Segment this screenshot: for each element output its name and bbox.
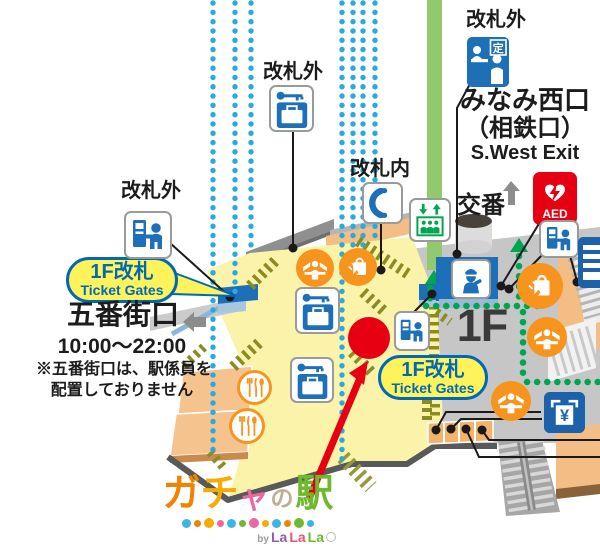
elevator-glyph [412, 201, 448, 239]
label-police-box: 交番 [448, 193, 514, 220]
service-counter-icon [296, 249, 334, 287]
kiosk-glyph [578, 237, 600, 288]
logo-char-1: ガ [162, 462, 200, 517]
logo-capsule-dots [142, 518, 354, 528]
coin-locker-glyph [294, 360, 331, 401]
fare-machine-icon: ¥ [544, 392, 585, 433]
police-officer-glyph [455, 263, 487, 295]
exit-name-jp2: （相鉄口） [450, 115, 600, 142]
kiosk-icon [578, 237, 600, 288]
shop-bag-glyph [521, 267, 559, 305]
label-floor-1f: 1F [450, 301, 514, 351]
restaurant-icon [229, 408, 265, 444]
elevator-icon [409, 198, 451, 242]
service-counter-icon [491, 381, 531, 421]
aed-label: AED [542, 207, 568, 221]
label-outside-gate-left: 改札外 [116, 180, 186, 202]
counter-glyph [494, 384, 528, 418]
bubble-left-line1: 1F改札 [69, 262, 175, 283]
aed-icon: AED [533, 172, 577, 225]
gacha-no-eki-logo: ガ チ ャ の 駅 by La La La [142, 462, 354, 545]
logo-title: ガ チ ャ の 駅 [142, 462, 354, 517]
exit-name-jp: みなみ西口 [450, 86, 600, 115]
station-floor-map: 改札外 改札外 改札内 改札外 みなみ西口 （相鉄口） S.West Exit … [0, 0, 600, 558]
counter-glyph [299, 252, 331, 284]
label-outside-gate-right: 改札外 [458, 9, 534, 31]
coin-locker-glyph [299, 290, 337, 332]
gobangai-note-line1: ※五番街口は、駅係員を [36, 360, 208, 380]
logo-char-2: チ [200, 462, 238, 517]
aed-glyph: AED [533, 172, 577, 225]
yen-label: ¥ [560, 407, 570, 425]
restaurant-icon [237, 370, 272, 405]
gobangai-note-line2: 配置しておりません [36, 381, 208, 401]
police-officer-icon [451, 259, 491, 299]
logo-by-text: by [257, 534, 269, 545]
ticket-machine-glyph [128, 215, 168, 255]
ticket-machine-attendant-icon [394, 311, 430, 351]
yen-glyph: ¥ [544, 392, 585, 433]
restaurant-glyph [233, 412, 261, 440]
service-counter-icon [527, 317, 567, 357]
shop-icon [517, 263, 563, 309]
bottom-escalator [498, 440, 560, 516]
coin-locker-icon [269, 85, 314, 132]
exit-name-en: S.West Exit [450, 142, 600, 165]
commuter-pass-glyph: 定 [467, 37, 509, 87]
counter-glyph [530, 320, 564, 354]
commuter-pass-office-icon: 定 [467, 37, 509, 87]
commuter-pass-label: 定 [493, 41, 504, 55]
pillar [455, 214, 492, 254]
ticket-machine-attendant-icon [124, 211, 172, 259]
bubble-right-line1: 1F改札 [381, 360, 485, 381]
ticket-machine-attendant-icon [539, 220, 579, 258]
gobangai-exit-name: 五番街口 [58, 299, 188, 330]
bubble-right-line2: Ticket Gates [381, 381, 485, 396]
logo-la2: La [289, 529, 305, 545]
ticket-machine-glyph [397, 315, 427, 347]
south-west-exit-title: みなみ西口 （相鉄口） S.West Exit [450, 86, 600, 165]
shop-icon [339, 248, 377, 286]
restaurant-glyph [241, 374, 268, 401]
coin-locker-glyph [273, 88, 311, 130]
logo-face-icon [326, 532, 336, 542]
shop-bag-glyph [342, 251, 374, 283]
coin-locker-icon [295, 287, 340, 334]
coin-locker-icon [290, 357, 334, 403]
gate-bubble-right: 1F改札 Ticket Gates [378, 355, 488, 400]
telephone-icon [362, 182, 403, 224]
logo-la1: La [271, 529, 287, 545]
logo-byline: by La La La [142, 529, 354, 545]
label-outside-gate-top: 改札外 [258, 61, 328, 83]
label-inside-gate: 改札内 [344, 158, 416, 180]
telephone-glyph [366, 185, 400, 221]
gobangai-hours: 10:00～22:00 [56, 335, 188, 359]
logo-char-3: ャ [239, 473, 269, 517]
logo-char-5: 駅 [296, 462, 334, 517]
gate-bubble-left: 1F改札 Ticket Gates [66, 257, 178, 303]
logo-char-4: の [269, 479, 296, 517]
ticket-machine-glyph [543, 223, 575, 255]
logo-la3: La [308, 529, 324, 545]
bubble-left-line2: Ticket Gates [69, 283, 175, 298]
